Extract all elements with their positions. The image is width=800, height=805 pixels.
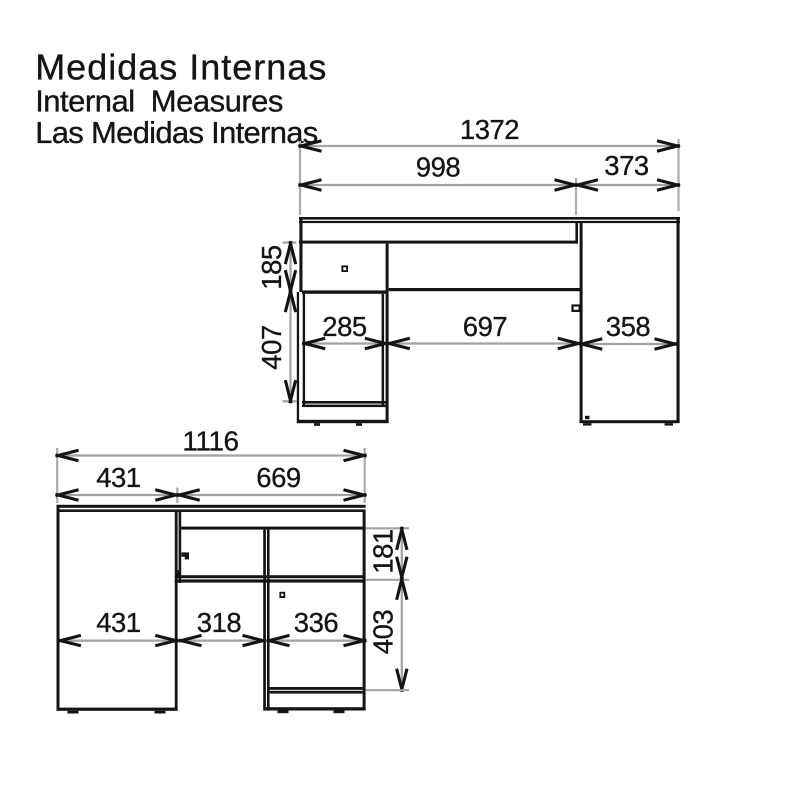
svg-text:669: 669 (256, 462, 300, 493)
svg-text:336: 336 (294, 607, 339, 638)
svg-text:Internal Measures: Internal Measures (35, 84, 283, 119)
svg-text:285: 285 (322, 311, 367, 342)
svg-text:431: 431 (96, 462, 140, 493)
svg-text:407: 407 (256, 325, 287, 369)
svg-text:Medidas Internas: Medidas Internas (35, 47, 327, 88)
svg-text:358: 358 (606, 311, 651, 342)
svg-text:1116: 1116 (182, 425, 238, 456)
svg-text:318: 318 (197, 607, 242, 638)
svg-text:403: 403 (368, 610, 399, 655)
svg-text:1372: 1372 (460, 114, 519, 145)
svg-text:185: 185 (256, 245, 287, 290)
svg-text:Las Medidas Internas: Las Medidas Internas (35, 115, 318, 150)
svg-text:181: 181 (368, 529, 399, 573)
svg-text:431: 431 (96, 607, 140, 638)
svg-text:998: 998 (416, 152, 461, 183)
svg-text:373: 373 (604, 150, 649, 181)
svg-text:697: 697 (463, 311, 507, 342)
